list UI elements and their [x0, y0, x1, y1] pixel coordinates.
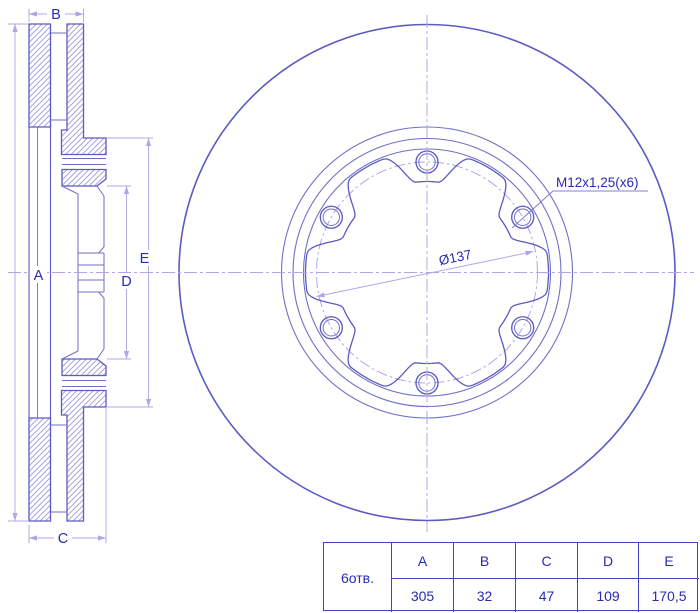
thread-spec-label: M12x1,25(x6) [556, 175, 639, 190]
dimension-arrow [12, 24, 17, 32]
table-value-a: 305 [391, 579, 453, 612]
table-header-c: C [515, 543, 577, 579]
table-header-b: B [453, 543, 515, 579]
section-hatched-piece [62, 170, 106, 187]
dimension-arrow [146, 399, 151, 407]
dim-label-b-group: B [47, 5, 65, 23]
dim-label-c-group: C [54, 529, 72, 547]
dimension-table: 6отв. A B C D E 305 32 47 109 170,5 [323, 542, 698, 611]
dim-label-a-group: A [30, 266, 47, 284]
table-value-b: 32 [453, 579, 515, 612]
dimension-arrow [124, 351, 129, 359]
table-header-e: E [638, 543, 699, 579]
dim-label-c: C [58, 531, 68, 547]
bolt-hole-bore [514, 320, 530, 336]
dimension-arrow [76, 11, 84, 16]
table-value-e: 170,5 [638, 579, 699, 612]
section-line [97, 349, 104, 359]
dimension-arrow [29, 11, 37, 16]
dim-label-a: A [34, 268, 44, 284]
table-row-label: 6отв. [324, 543, 391, 612]
dim-label-d-group: D [118, 273, 135, 290]
dimension-arrow [98, 535, 106, 540]
dimension-labels: A B C D E M12x1,25(x6) Ø137 [30, 5, 639, 547]
table-value-c: 47 [515, 579, 577, 612]
dimension-arrow [12, 513, 17, 521]
dimension-arrow [146, 138, 151, 146]
drawing-canvas: A B C D E M12x1,25(x6) Ø137 [0, 0, 700, 613]
brake-disc-drawing: A B C D E M12x1,25(x6) Ø137 [0, 0, 700, 613]
section-line [99, 292, 105, 298]
section-line [99, 247, 105, 253]
section-hatched-piece [29, 24, 51, 127]
section-hatched-piece [62, 391, 107, 522]
dimension-arrow [29, 535, 37, 540]
section-hatched-piece [62, 359, 106, 376]
dimension-arrow [124, 186, 129, 194]
section-line [97, 186, 104, 196]
table-header-a: A [391, 543, 453, 579]
dim-label-d: D [121, 274, 131, 290]
section-hatched-piece [29, 418, 51, 521]
section-line [62, 351, 78, 359]
dim-label-e-group: E [136, 250, 153, 267]
table-header-d: D [577, 543, 638, 579]
section-line [62, 186, 78, 194]
dim-label-b: B [51, 7, 61, 23]
dim-label-e: E [140, 251, 150, 267]
table-value-d: 109 [577, 579, 638, 612]
section-hatched-piece [62, 24, 107, 155]
dimension-line [317, 252, 534, 297]
